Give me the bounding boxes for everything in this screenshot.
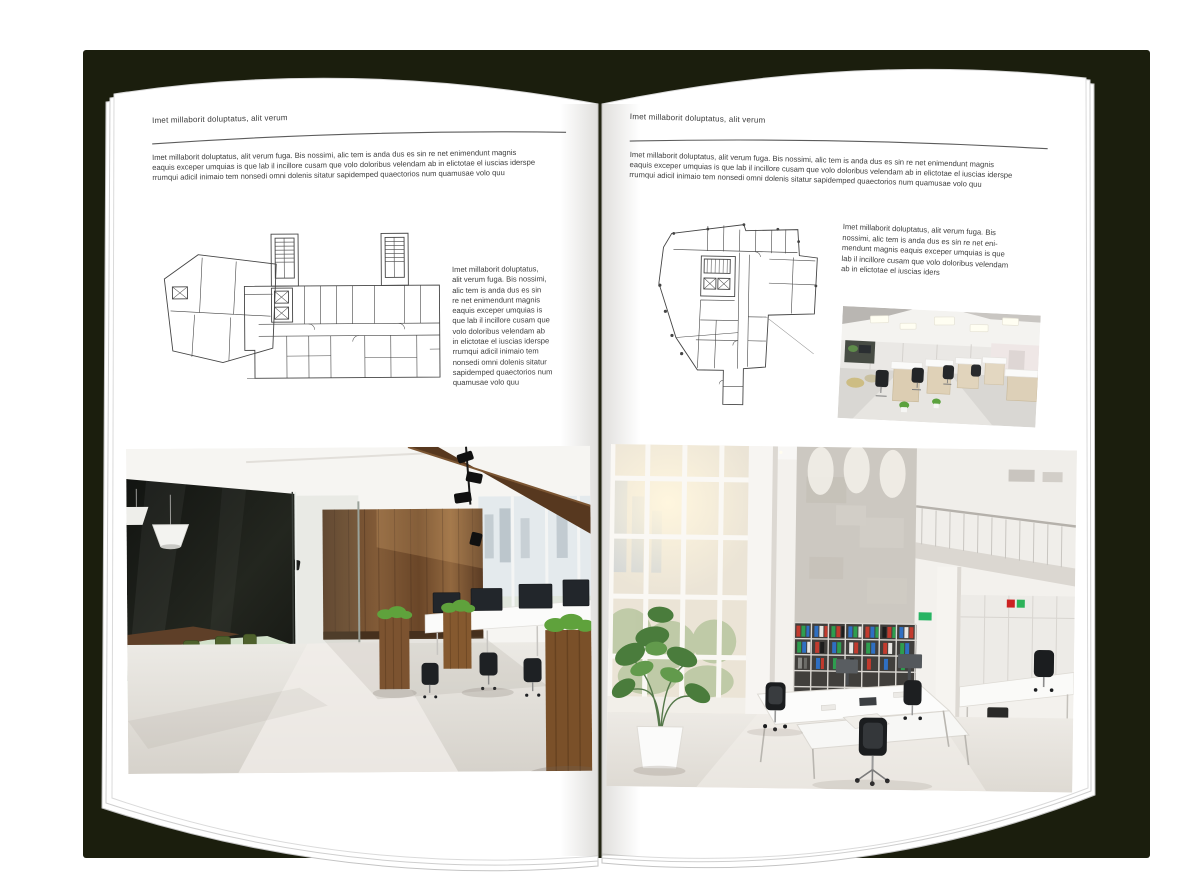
magazine-spread-mockup: Imet millaborit doluptatus, alit verum I… <box>0 0 1200 891</box>
floor-plan-right <box>645 219 832 420</box>
left-side-paragraph: Imet millaborit doluptatus, alit verum f… <box>452 264 579 388</box>
left-intro-paragraph: Imet millaborit doluptatus, alit verum f… <box>152 147 582 184</box>
office-photo-small <box>838 306 1041 428</box>
stair-core <box>701 256 736 297</box>
floor-plan-left <box>158 229 449 417</box>
office-photo-right <box>606 444 1077 792</box>
exit-sign <box>919 612 932 620</box>
office-photo-left <box>126 446 592 774</box>
stair-tower-icon <box>381 233 408 285</box>
media-wall <box>844 340 875 363</box>
stair-tower-icon <box>271 234 298 286</box>
concrete-wall <box>794 445 917 641</box>
right-body-paragraph: Imet millaborit doluptatus, alit verum f… <box>841 222 1047 283</box>
